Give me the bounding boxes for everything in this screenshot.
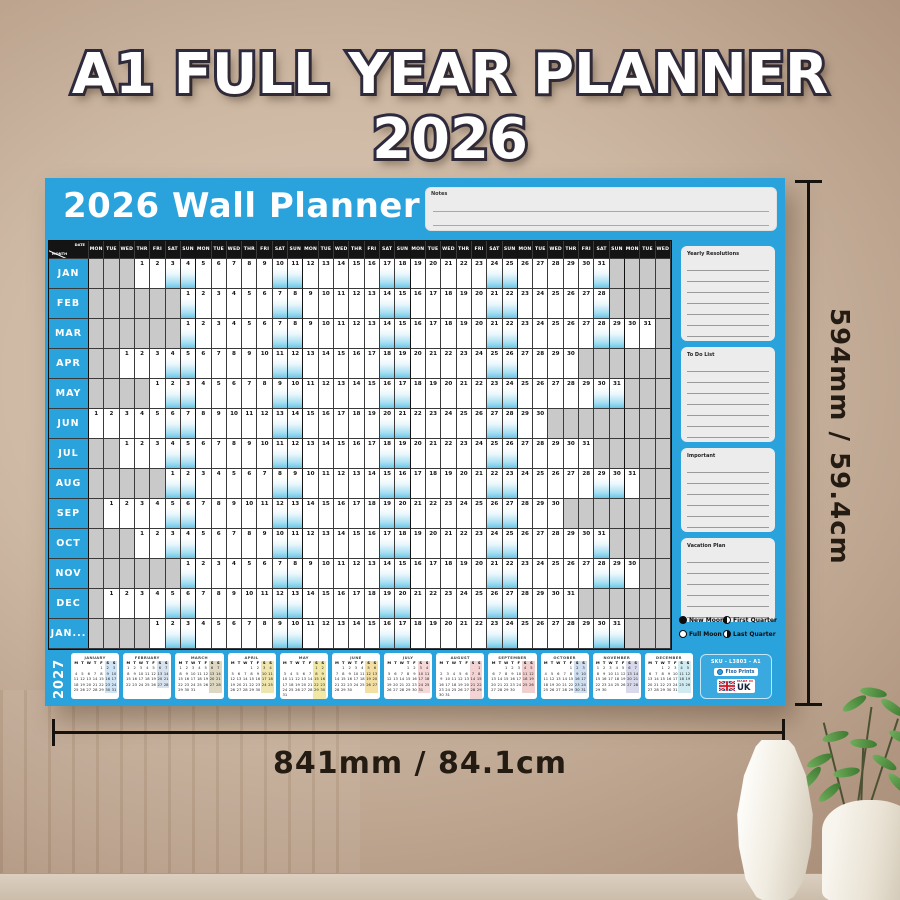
day-cell: 30 [594, 379, 609, 409]
day-cell: 26 [564, 559, 579, 589]
day-header-cell: WED [548, 241, 563, 259]
day-cell: 15 [395, 559, 410, 589]
day-cell: 6 [257, 319, 272, 349]
writing-line [687, 585, 769, 596]
empty-cell [594, 349, 609, 379]
legend-label: First Quarter [733, 617, 777, 624]
empty-cell [104, 319, 119, 349]
day-cell: 1 [181, 319, 196, 349]
day-cell: 16 [395, 469, 410, 499]
day-cell: 31 [594, 529, 609, 559]
day-cell: 14 [334, 259, 349, 289]
day-cell: 3 [150, 439, 165, 469]
day-cell: 4 [150, 589, 165, 619]
empty-cell [625, 619, 640, 649]
empty-cell [610, 439, 625, 469]
day-cell: 5 [212, 379, 227, 409]
day-cell: 10 [319, 319, 334, 349]
day-cell: 20 [411, 439, 426, 469]
day-cell: 5 [166, 499, 181, 529]
day-cell: 13 [303, 349, 318, 379]
empty-cell [610, 589, 625, 619]
day-cell: 27 [579, 289, 594, 319]
day-cell: 4 [135, 409, 150, 439]
day-cell: 6 [212, 529, 227, 559]
writing-line [687, 473, 769, 484]
day-cell: 8 [288, 559, 303, 589]
day-cell: 29 [548, 439, 563, 469]
empty-cell [120, 259, 135, 289]
notes-box: Notes [425, 187, 777, 231]
day-header-cell: MON [411, 241, 426, 259]
day-cell: 13 [334, 379, 349, 409]
empty-cell [89, 379, 104, 409]
day-cell: 29 [533, 499, 548, 529]
day-cell: 9 [227, 499, 242, 529]
day-cell: 14 [380, 289, 395, 319]
writing-line [687, 315, 769, 326]
month-label-cell: JUL [49, 439, 89, 469]
day-cell: 5 [181, 439, 196, 469]
mini-calendar-february: FEBRUARYMTWTFSS1234567891011121314151617… [123, 653, 171, 699]
day-cell: 10 [273, 259, 288, 289]
day-cell: 14 [380, 559, 395, 589]
day-cell: 31 [564, 589, 579, 619]
day-header-cell: WED [334, 241, 349, 259]
day-cell: 1 [89, 409, 104, 439]
day-cell: 3 [150, 349, 165, 379]
day-cell: 3 [212, 319, 227, 349]
day-cell: 26 [533, 379, 548, 409]
day-cell: 11 [257, 589, 272, 619]
page-title: A1 FULL YEAR PLANNER 2026 [0, 42, 900, 172]
day-cell: 26 [533, 619, 548, 649]
day-cell: 7 [273, 559, 288, 589]
day-cell: 11 [303, 619, 318, 649]
day-cell: 21 [411, 499, 426, 529]
mini-calendar-march: MARCHMTWTFSS1234567891011121314151617181… [175, 653, 223, 699]
day-cell: 25 [548, 289, 563, 319]
empty-cell [150, 319, 165, 349]
empty-cell [640, 259, 655, 289]
plant-pot-vase [822, 800, 900, 900]
day-cell: 23 [518, 289, 533, 319]
day-cell: 4 [227, 289, 242, 319]
day-cell: 13 [319, 529, 334, 559]
day-cell: 28 [548, 529, 563, 559]
empty-cell [135, 469, 150, 499]
sku-label: SKU - L3803 - A1 [711, 660, 761, 665]
day-cell: 19 [365, 409, 380, 439]
day-cell: 8 [212, 589, 227, 619]
day-header-cell: THR [564, 241, 579, 259]
day-cell: 10 [288, 379, 303, 409]
empty-cell [135, 289, 150, 319]
day-cell: 11 [334, 289, 349, 319]
day-cell: 19 [395, 349, 410, 379]
day-header-cell: SAT [487, 241, 502, 259]
day-cell: 26 [518, 529, 533, 559]
day-cell: 2 [120, 499, 135, 529]
day-cell: 13 [303, 439, 318, 469]
empty-cell [89, 349, 104, 379]
day-cell: 13 [365, 289, 380, 319]
day-header-cell: THR [135, 241, 150, 259]
empty-cell [610, 259, 625, 289]
empty-cell [594, 499, 609, 529]
day-cell: 25 [548, 559, 563, 589]
mini-calendar-grid: MTWTFSS123456789101112131415161718192021… [334, 661, 378, 693]
side-panel: Yearly ResolutionsTo Do ListImportantVac… [681, 246, 775, 628]
plant-leaf [841, 693, 869, 715]
day-cell: 15 [349, 259, 364, 289]
day-cell: 20 [395, 499, 410, 529]
day-cell: 30 [625, 559, 640, 589]
day-cell: 27 [579, 319, 594, 349]
month-label-cell: OCT [49, 529, 89, 559]
height-dimension-cap-bottom [795, 703, 822, 706]
empty-cell [104, 259, 119, 289]
day-cell: 21 [395, 409, 410, 439]
day-cell: 23 [472, 529, 487, 559]
day-cell: 10 [319, 559, 334, 589]
day-cell: 14 [380, 319, 395, 349]
day-cell: 13 [334, 619, 349, 649]
mini-calendar-july: JULYMTWTFSS12345678910111213141516171819… [384, 653, 432, 699]
plant-leaf [816, 780, 842, 804]
day-cell: 16 [380, 379, 395, 409]
mini-calendar-grid: MTWTFSS123456789101112131415161718192021… [438, 661, 482, 699]
day-cell: 17 [334, 409, 349, 439]
day-cell: 7 [196, 499, 211, 529]
day-cell: 15 [303, 409, 318, 439]
day-cell: 27 [564, 469, 579, 499]
day-cell: 20 [380, 409, 395, 439]
day-cell: 11 [257, 499, 272, 529]
day-header-cell: SAT [166, 241, 181, 259]
day-cell: 27 [579, 559, 594, 589]
day-cell: 16 [380, 619, 395, 649]
day-cell: 15 [380, 469, 395, 499]
empty-cell [579, 499, 594, 529]
day-cell: 18 [411, 379, 426, 409]
day-cell: 27 [548, 619, 563, 649]
day-cell: 9 [273, 619, 288, 649]
day-cell: 28 [518, 499, 533, 529]
country-label: UK [737, 684, 751, 692]
day-cell: 23 [487, 379, 502, 409]
day-cell: 18 [365, 499, 380, 529]
day-cell: 12 [349, 289, 364, 319]
day-cell: 22 [487, 469, 502, 499]
day-cell: 31 [579, 439, 594, 469]
month-label-cell: FEB [49, 289, 89, 319]
empty-cell [564, 409, 579, 439]
day-cell: 1 [150, 619, 165, 649]
day-cell: 23 [472, 259, 487, 289]
day-cell: 24 [472, 349, 487, 379]
empty-cell [640, 589, 655, 619]
day-cell: 19 [411, 259, 426, 289]
writing-line [687, 260, 769, 271]
day-cell: 28 [533, 439, 548, 469]
day-cell: 3 [166, 259, 181, 289]
day-cell: 31 [610, 379, 625, 409]
day-cell: 30 [579, 259, 594, 289]
writing-line [687, 552, 769, 563]
day-cell: 30 [548, 589, 563, 619]
day-cell: 14 [349, 379, 364, 409]
empty-cell [579, 349, 594, 379]
day-cell: 6 [181, 499, 196, 529]
day-cell: 25 [548, 319, 563, 349]
day-cell: 29 [564, 529, 579, 559]
day-cell: 8 [227, 349, 242, 379]
mini-calendar-grid: MTWTFSS123456789101112131415161718192021… [230, 661, 274, 693]
plant-leaf [850, 738, 878, 749]
day-cell: 17 [349, 589, 364, 619]
day-cell: 17 [380, 529, 395, 559]
day-cell: 17 [395, 619, 410, 649]
day-cell: 16 [319, 409, 334, 439]
month-label-cell: JUN [49, 409, 89, 439]
mini-blank-cell [633, 688, 639, 693]
day-cell: 11 [273, 439, 288, 469]
day-cell: 14 [349, 619, 364, 649]
day-cell: 15 [334, 349, 349, 379]
empty-cell [656, 559, 671, 589]
empty-cell [625, 259, 640, 289]
empty-cell [640, 289, 655, 319]
empty-cell [104, 379, 119, 409]
day-cell: 24 [503, 379, 518, 409]
day-cell: 8 [242, 529, 257, 559]
day-cell: 2 [196, 319, 211, 349]
legend-item-full-moon: Full Moon [679, 630, 723, 638]
empty-cell [150, 559, 165, 589]
day-cell: 17 [365, 439, 380, 469]
day-cell: 1 [181, 559, 196, 589]
day-cell: 8 [257, 619, 272, 649]
day-cell: 11 [288, 259, 303, 289]
day-cell: 26 [503, 439, 518, 469]
legend-label: Last Quarter [733, 631, 776, 638]
mini-calendar-november: NOVEMBERMTWTFSS1234567891011121314151617… [593, 653, 641, 699]
day-cell: 25 [533, 469, 548, 499]
day-cell: 7 [242, 379, 257, 409]
mini-date-cell: 31 [111, 688, 117, 693]
writing-line [687, 361, 769, 372]
empty-cell [104, 349, 119, 379]
mini-calendar-may: MAYMTWTFSS123456789101112131415161718192… [280, 653, 328, 699]
empty-cell [104, 289, 119, 319]
day-cell: 22 [426, 499, 441, 529]
day-cell: 17 [411, 469, 426, 499]
brand-badge: Fixo Prints [714, 668, 757, 676]
empty-cell [594, 439, 609, 469]
mini-calendar-grid: MTWTFSS123456789101112131415161718192021… [282, 661, 326, 699]
day-cell: 13 [273, 409, 288, 439]
day-cell: 22 [457, 259, 472, 289]
day-cell: 5 [166, 589, 181, 619]
day-cell: 6 [212, 259, 227, 289]
empty-cell [135, 559, 150, 589]
day-cell: 10 [257, 439, 272, 469]
empty-cell [640, 559, 655, 589]
day-cell: 16 [411, 289, 426, 319]
day-cell: 23 [457, 349, 472, 379]
day-cell: 19 [426, 619, 441, 649]
day-cell: 17 [380, 259, 395, 289]
day-cell: 28 [564, 379, 579, 409]
empty-cell [89, 619, 104, 649]
day-header-cell: SAT [380, 241, 395, 259]
day-cell: 31 [594, 259, 609, 289]
moon-phase-legend: New MoonFirst QuarterFull MoonLast Quart… [679, 616, 779, 638]
empty-cell [656, 499, 671, 529]
day-cell: 19 [457, 319, 472, 349]
empty-cell [640, 529, 655, 559]
day-cell: 8 [288, 289, 303, 319]
day-header-cell: SUN [395, 241, 410, 259]
day-cell: 3 [120, 409, 135, 439]
day-cell: 21 [441, 259, 456, 289]
day-header-cell: FRI [150, 241, 165, 259]
day-cell: 23 [426, 409, 441, 439]
day-cell: 27 [533, 529, 548, 559]
mini-blank-cell [528, 688, 534, 693]
day-cell: 20 [441, 619, 456, 649]
empty-cell [104, 559, 119, 589]
day-cell: 10 [273, 529, 288, 559]
day-cell: 12 [273, 499, 288, 529]
full-moon-icon [679, 630, 687, 638]
day-cell: 5 [212, 619, 227, 649]
empty-cell [135, 319, 150, 349]
day-header-cell: MON [303, 241, 318, 259]
empty-cell [640, 439, 655, 469]
day-cell: 21 [457, 619, 472, 649]
empty-cell [120, 619, 135, 649]
empty-cell [89, 529, 104, 559]
mini-blank-cell [424, 688, 430, 693]
day-cell: 28 [594, 289, 609, 319]
day-cell: 30 [564, 349, 579, 379]
legend-label: New Moon [689, 617, 724, 624]
day-cell: 2 [166, 619, 181, 649]
mini-blank-cell [215, 688, 221, 693]
day-cell: 10 [242, 589, 257, 619]
day-cell: 6 [196, 439, 211, 469]
empty-cell [120, 289, 135, 319]
day-header-cell: THR [457, 241, 472, 259]
day-cell: 23 [487, 619, 502, 649]
day-cell: 7 [242, 619, 257, 649]
day-cell: 7 [212, 439, 227, 469]
poster-title: 2026 Wall Planner [63, 186, 420, 226]
writing-line [687, 427, 769, 438]
day-cell: 22 [503, 289, 518, 319]
empty-cell [89, 259, 104, 289]
day-header-cell: FRI [365, 241, 380, 259]
day-cell: 27 [487, 409, 502, 439]
day-cell: 2 [196, 559, 211, 589]
day-header-cell: THR [242, 241, 257, 259]
writing-line [687, 282, 769, 293]
day-header-cell: FRI [579, 241, 594, 259]
last-quarter-icon [723, 630, 731, 638]
day-cell: 8 [196, 409, 211, 439]
day-cell: 8 [212, 499, 227, 529]
day-cell: 1 [104, 499, 119, 529]
day-cell: 3 [181, 379, 196, 409]
day-cell: 5 [242, 559, 257, 589]
day-cell: 14 [319, 439, 334, 469]
day-cell: 22 [472, 619, 487, 649]
day-cell: 22 [441, 349, 456, 379]
day-cell: 7 [227, 529, 242, 559]
month-label-cell: MAY [49, 379, 89, 409]
corner-month-label: MONTH [52, 252, 67, 256]
empty-cell [656, 439, 671, 469]
day-cell: 12 [319, 379, 334, 409]
day-cell: 18 [380, 439, 395, 469]
day-cell: 17 [349, 499, 364, 529]
writing-line [687, 506, 769, 517]
height-dimension-label: 594mm / 59.4cm [824, 308, 854, 565]
empty-cell [594, 589, 609, 619]
day-cell: 12 [319, 619, 334, 649]
day-cell: 28 [564, 619, 579, 649]
empty-cell [640, 619, 655, 649]
width-dimension-label: 841mm / 84.1cm [0, 746, 840, 781]
day-cell: 17 [365, 349, 380, 379]
day-cell: 11 [334, 319, 349, 349]
day-cell: 20 [472, 319, 487, 349]
day-cell: 4 [196, 619, 211, 649]
day-cell: 12 [288, 439, 303, 469]
width-dimension-line [52, 731, 785, 734]
day-cell: 14 [303, 589, 318, 619]
day-cell: 25 [518, 379, 533, 409]
day-cell: 5 [242, 289, 257, 319]
mini-calendar-april: APRILMTWTFSS1234567891011121314151617181… [228, 653, 276, 699]
day-cell: 11 [242, 409, 257, 439]
empty-cell [135, 619, 150, 649]
day-cell: 10 [242, 499, 257, 529]
empty-cell [625, 289, 640, 319]
side-section-vacation-plan: Vacation Plan [681, 538, 775, 622]
day-cell: 28 [503, 409, 518, 439]
day-cell: 7 [181, 409, 196, 439]
day-cell: 6 [242, 469, 257, 499]
day-cell: 16 [365, 529, 380, 559]
day-cell: 26 [487, 499, 502, 529]
day-cell: 26 [503, 349, 518, 379]
day-cell: 29 [594, 469, 609, 499]
empty-cell [625, 349, 640, 379]
day-cell: 7 [227, 259, 242, 289]
day-header-cell: SUN [288, 241, 303, 259]
day-cell: 24 [487, 259, 502, 289]
day-cell: 2 [166, 379, 181, 409]
day-cell: 26 [472, 409, 487, 439]
empty-cell [150, 469, 165, 499]
day-cell: 14 [334, 529, 349, 559]
day-header-cell: MON [89, 241, 104, 259]
day-header-cell: MON [625, 241, 640, 259]
day-cell: 23 [457, 439, 472, 469]
